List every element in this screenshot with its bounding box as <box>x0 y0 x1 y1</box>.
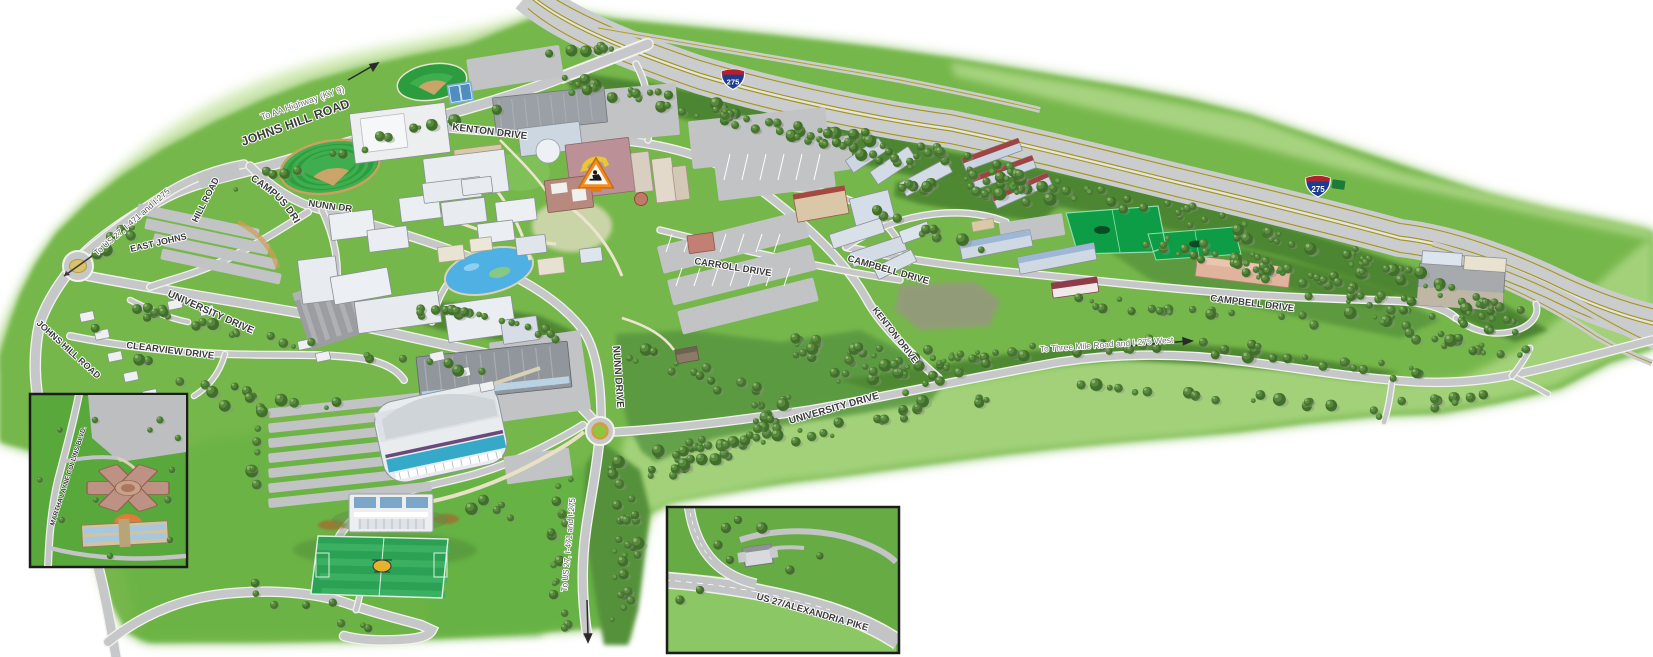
svg-text:DR: DR <box>338 202 353 215</box>
svg-text:275: 275 <box>1311 185 1325 194</box>
svg-text:275: 275 <box>727 78 740 87</box>
